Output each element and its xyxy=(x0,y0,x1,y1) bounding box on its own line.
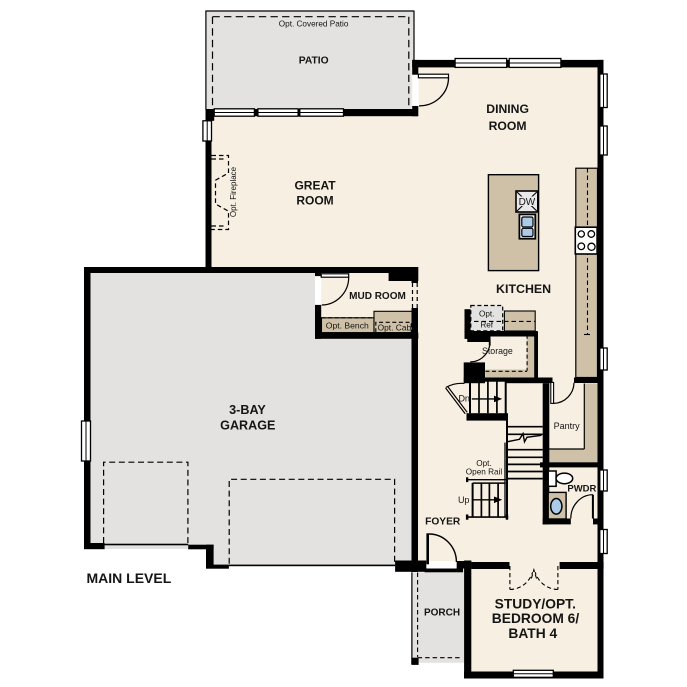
svg-text:Dn: Dn xyxy=(458,394,470,404)
svg-text:3-BAY: 3-BAY xyxy=(229,403,266,417)
svg-text:ROOM: ROOM xyxy=(296,194,333,208)
svg-text:Up: Up xyxy=(458,495,470,505)
svg-text:KITCHEN: KITCHEN xyxy=(496,282,551,296)
svg-text:DW: DW xyxy=(519,197,536,208)
svg-text:MUD ROOM: MUD ROOM xyxy=(349,291,406,302)
svg-text:FOYER: FOYER xyxy=(425,516,461,527)
svg-text:BEDROOM 6/: BEDROOM 6/ xyxy=(492,611,580,626)
svg-text:DINING: DINING xyxy=(486,102,529,116)
svg-text:GARAGE: GARAGE xyxy=(220,419,275,433)
svg-text:Opt. Bench: Opt. Bench xyxy=(326,321,369,331)
svg-text:Pantry: Pantry xyxy=(554,421,581,431)
svg-text:Opt. Fireplace: Opt. Fireplace xyxy=(229,166,238,217)
svg-text:PATIO: PATIO xyxy=(299,55,329,66)
svg-text:STUDY/OPT.: STUDY/OPT. xyxy=(495,596,576,611)
svg-text:Opt.: Opt. xyxy=(476,459,491,468)
svg-text:Storage: Storage xyxy=(482,346,513,356)
svg-text:Opt. Cab: Opt. Cab xyxy=(378,323,412,333)
svg-text:ROOM: ROOM xyxy=(489,119,527,133)
svg-text:PWDR: PWDR xyxy=(567,483,596,494)
svg-text:GREAT: GREAT xyxy=(294,178,336,192)
svg-text:PORCH: PORCH xyxy=(424,608,460,619)
svg-text:BATH 4: BATH 4 xyxy=(508,626,557,641)
svg-text:Opt. Covered Patio: Opt. Covered Patio xyxy=(279,19,349,28)
svg-text:Opt.: Opt. xyxy=(479,310,494,319)
svg-text:MAIN LEVEL: MAIN LEVEL xyxy=(87,570,172,586)
svg-text:Open Rail: Open Rail xyxy=(466,468,503,477)
svg-text:Ref: Ref xyxy=(480,320,493,329)
